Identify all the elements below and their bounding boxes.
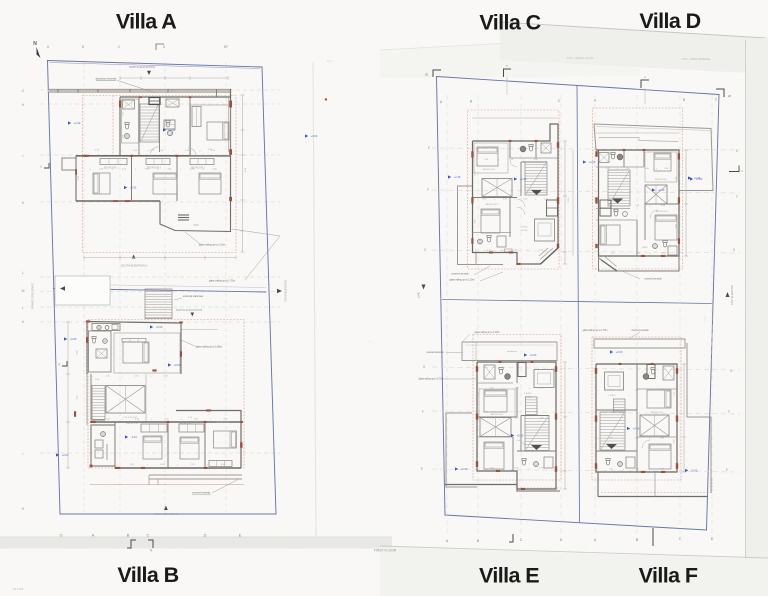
svg-text:~: ~ bbox=[598, 255, 603, 264]
svg-text:...: ... bbox=[368, 338, 372, 344]
svg-text:F.F.L: F.F.L bbox=[327, 59, 334, 63]
